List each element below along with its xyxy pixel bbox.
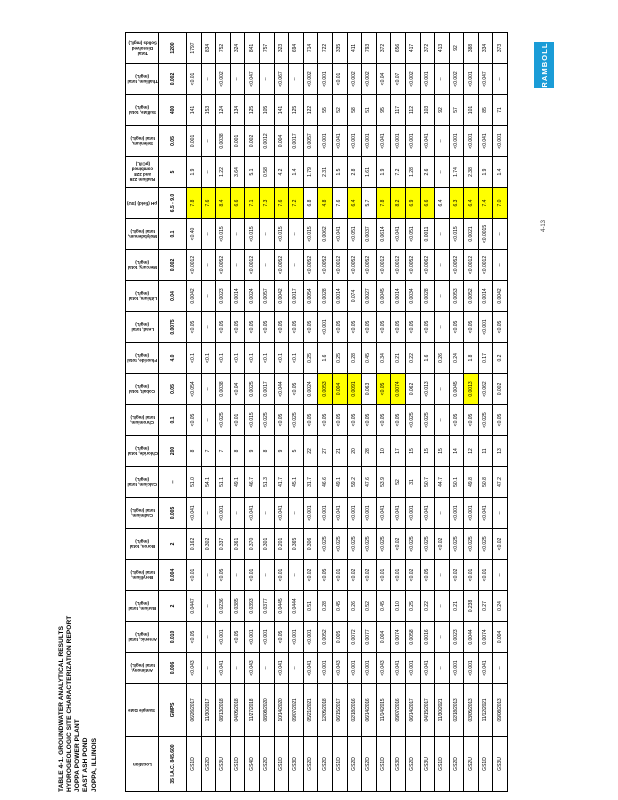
standard-value: 0.1 <box>159 405 187 436</box>
result-value: 0.0021 <box>464 219 479 250</box>
result-value: <0.02 <box>405 560 420 591</box>
result-value: <0.05 <box>274 312 289 343</box>
result-value: 0.062 <box>405 374 420 405</box>
result-value: <0.001 <box>478 312 493 343</box>
result-value: <0.047 <box>478 64 493 95</box>
result-value: <0.01 <box>274 560 289 591</box>
result-value: <0.05 <box>187 405 202 436</box>
result-value: 417 <box>405 33 420 64</box>
result-value: <0.05 <box>493 312 508 343</box>
analyte-name-label: Lead, total (mg/L) <box>127 322 158 332</box>
result-value: 694 <box>289 33 304 64</box>
result-value: -- <box>201 219 216 250</box>
result-value: -- <box>493 64 508 95</box>
sample-date: 11/12/2021 <box>478 684 493 737</box>
result-value: <0.05 <box>303 405 318 436</box>
result-value-exceedance: 0.0053 <box>318 374 333 405</box>
result-value: <0.05 <box>464 312 479 343</box>
standard-value: 0.05 <box>159 374 187 405</box>
result-value: <0.002 <box>347 64 362 95</box>
result-value: 0.0445 <box>274 591 289 622</box>
result-value: 1.79 <box>303 157 318 188</box>
standard-value: 1200 <box>159 33 187 64</box>
result-value: 0.17 <box>478 343 493 374</box>
col-header-analyte: Cadmium, total (mg/L) <box>126 498 159 529</box>
result-value-exceedance: 7.6 <box>274 188 289 219</box>
result-value: <0.001 <box>318 498 333 529</box>
result-value: <0.0012 <box>478 250 493 281</box>
sample-date: 08/08/2020 <box>259 684 274 737</box>
result-value: <0.001 <box>347 126 362 157</box>
result-value: 92 <box>435 95 450 126</box>
result-value: 1.6 <box>318 343 333 374</box>
result-value: <0.0012 <box>464 250 479 281</box>
analyte-name-label: Antimony, total (mg/L) <box>127 663 158 673</box>
result-value: 122 <box>303 95 318 126</box>
result-value: 1.28 <box>405 157 420 188</box>
result-value: 117 <box>391 95 406 126</box>
sample-row: GS1D11/12/2021<0.0410.00740.27<0.01<0.02… <box>478 33 493 792</box>
result-value-exceedance: 0.0013 <box>464 374 479 405</box>
sample-row: GS2D02/18/2013<0.0010.00230.21<0.02<0.02… <box>449 33 464 792</box>
sample-row: GS2D11/30/2017--------0.302--54.17----<0… <box>201 33 216 792</box>
result-value: 10 <box>376 436 391 467</box>
result-value: 0.0025 <box>245 374 260 405</box>
site-location: JOPPA, ILLINOIS <box>91 616 99 792</box>
col-header-analyte: Cobalt, total (mg/L) <box>126 374 159 405</box>
sample-row: GS2D06/14/2016<0.0010.00770.52<0.02<0.02… <box>362 33 377 792</box>
col-header-analyte: Chromium, total (mg/L) <box>126 405 159 436</box>
result-value: 0.21 <box>449 591 464 622</box>
result-value: 21 <box>332 436 347 467</box>
result-value: 8 <box>230 436 245 467</box>
well-location: GS1D <box>230 737 245 792</box>
sample-date: 04/05/2018 <box>230 684 245 737</box>
result-value: <0.02 <box>303 560 318 591</box>
result-value: -- <box>435 622 450 653</box>
result-value: <0.05 <box>318 560 333 591</box>
standard-value: 400 <box>159 95 187 126</box>
result-value: <0.002 <box>216 64 231 95</box>
result-value: <0.025 <box>289 405 304 436</box>
result-value: 28 <box>362 436 377 467</box>
result-value: 15 <box>420 436 435 467</box>
result-value: 7 <box>201 436 216 467</box>
result-value: 0.26 <box>347 591 362 622</box>
result-value: <0.05 <box>391 405 406 436</box>
result-value: 0.0072 <box>347 622 362 653</box>
result-value: <0.041 <box>332 498 347 529</box>
result-value: 0.004 <box>493 622 508 653</box>
result-value: 49.8 <box>464 467 479 498</box>
analyte-name-label: Molybdenum, total (mg/L) <box>127 229 158 239</box>
result-value: <0.0052 <box>449 250 464 281</box>
standard-value: -- <box>159 467 187 498</box>
result-value: 53.9 <box>376 467 391 498</box>
result-value: <0.043 <box>332 653 347 684</box>
result-value: <0.025 <box>332 529 347 560</box>
result-value: <0.001 <box>449 653 464 684</box>
col-header-sample-date-label: Sample Date <box>128 707 155 712</box>
standard-value: 0.004 <box>159 560 187 591</box>
result-value: -- <box>289 250 304 281</box>
result-value: 2.6 <box>420 157 435 188</box>
result-value: <0.0012 <box>391 250 406 281</box>
result-value: <0.002 <box>303 64 318 95</box>
sample-row: GS1D04/05/2018--<0.050.0385--0.361--49.1… <box>230 33 245 792</box>
result-value-exceedance: 4.8 <box>318 188 333 219</box>
result-value-exceedance: <0.05 <box>376 374 391 405</box>
result-value: -- <box>435 653 450 684</box>
result-value-exceedance: 6.4 <box>347 188 362 219</box>
result-value: <0.05 <box>347 312 362 343</box>
result-value: <0.05 <box>318 405 333 436</box>
result-value: -- <box>201 281 216 312</box>
result-value: 0.22 <box>405 343 420 374</box>
result-value: 51.1 <box>216 467 231 498</box>
well-location: GS1D <box>435 737 450 792</box>
ramboll-logo: RAMBOLL <box>534 42 554 88</box>
result-value: -- <box>259 64 274 95</box>
standards-row: 35 I.A.C. 845.600GWPS0.0060.01020.00420.… <box>159 33 187 792</box>
result-value: <0.0052 <box>347 250 362 281</box>
result-value: <0.041 <box>420 653 435 684</box>
result-value: <0.001 <box>318 126 333 157</box>
result-value: 0.0034 <box>405 281 420 312</box>
well-location: GS3D <box>289 737 304 792</box>
result-value: <0.015 <box>245 219 260 250</box>
result-value: <0.0052 <box>318 250 333 281</box>
standard-value: 5 <box>159 157 187 188</box>
result-value: 0.301 <box>259 529 274 560</box>
result-value: -- <box>289 64 304 95</box>
result-value: 112 <box>405 95 420 126</box>
result-value: 0.0024 <box>303 374 318 405</box>
result-value: -- <box>435 405 450 436</box>
sample-date: 02/18/2013 <box>449 684 464 737</box>
result-value: 0.52 <box>362 591 377 622</box>
result-value: <0.05 <box>289 312 304 343</box>
well-location: GS1D <box>376 737 391 792</box>
well-location: GS1D <box>332 737 347 792</box>
result-value-exceedance: 8.2 <box>391 188 406 219</box>
result-value: 656 <box>391 33 406 64</box>
result-value: <0.01 <box>187 560 202 591</box>
result-value: <0.05 <box>449 405 464 436</box>
result-value: <0.041 <box>216 653 231 684</box>
analyte-name-label: Selenium, total (mg/L) <box>127 136 158 146</box>
result-value: <0.05 <box>376 405 391 436</box>
result-value-exceedance: 7.6 <box>201 188 216 219</box>
result-value: <0.041 <box>478 498 493 529</box>
sample-date: 05/21/2021 <box>303 684 318 737</box>
result-value-exceedance: 7.8 <box>187 188 202 219</box>
result-value: 5 <box>289 436 304 467</box>
result-value: 153 <box>201 95 216 126</box>
sample-date: 06/14/2016 <box>362 684 377 737</box>
sample-date: 11/14/2015 <box>376 684 391 737</box>
result-value: -- <box>230 219 245 250</box>
col-header-analyte: Thallium, total (mg/L) <box>126 64 159 95</box>
result-value: <0.001 <box>259 622 274 653</box>
analyte-name-label: pH (field) (SU) <box>127 200 157 205</box>
result-value: -- <box>259 250 274 281</box>
result-value: <0.1 <box>230 343 245 374</box>
result-value: 54.1 <box>201 467 216 498</box>
col-header-location-label: Location <box>133 761 152 766</box>
result-value: 57 <box>449 95 464 126</box>
result-value: 47.6 <box>362 467 377 498</box>
result-value: <0.0062 <box>420 250 435 281</box>
sample-row: GS2D02/18/2016<0.0010.00720.26<0.02<0.02… <box>347 33 362 792</box>
result-value: 0.0014 <box>478 281 493 312</box>
col-header-analyte: Lead, total (mg/L) <box>126 312 159 343</box>
result-value: 0.0053 <box>449 281 464 312</box>
result-value: 3.64 <box>230 157 245 188</box>
result-value: 8 <box>259 436 274 467</box>
result-value: <0.1 <box>259 343 274 374</box>
result-value: -- <box>230 498 245 529</box>
result-value: <0.02 <box>362 560 377 591</box>
result-value: <0.05 <box>420 312 435 343</box>
standard-value: 0.010 <box>159 622 187 653</box>
result-value: 141 <box>274 95 289 126</box>
result-value: 0.0044 <box>464 622 479 653</box>
result-value: <0.05 <box>216 560 231 591</box>
result-value: 722 <box>318 33 333 64</box>
result-value: 6.4 <box>435 188 450 219</box>
result-value: 85 <box>478 95 493 126</box>
result-value: 0.002 <box>493 374 508 405</box>
result-value: <0.001 <box>464 498 479 529</box>
result-value: 0.25 <box>332 343 347 374</box>
result-value: <0.0015 <box>478 219 493 250</box>
result-value: 71 <box>493 95 508 126</box>
result-value: <0.05 <box>391 312 406 343</box>
result-value: 0.0393 <box>245 591 260 622</box>
result-value: <0.05 <box>464 405 479 436</box>
result-value: 0.0236 <box>216 591 231 622</box>
result-value: -- <box>201 312 216 343</box>
col-header-analyte: Molybdenum, total (mg/L) <box>126 219 159 250</box>
analyte-name-label: Cobalt, total (mg/L) <box>127 384 158 394</box>
result-value: 0.34 <box>376 343 391 374</box>
col-header-analyte: Lithium, total (mg/L) <box>126 281 159 312</box>
result-value: 0.365 <box>289 529 304 560</box>
result-value: 323 <box>274 33 289 64</box>
result-value: 752 <box>216 33 231 64</box>
standard-value: 0.04 <box>159 281 187 312</box>
result-value: 55 <box>318 95 333 126</box>
result-value: <0.025 <box>405 405 420 436</box>
result-value: 2.38 <box>464 157 479 188</box>
result-value: 50.8 <box>478 467 493 498</box>
result-value: 0.0027 <box>362 281 377 312</box>
result-value: 45.1 <box>289 467 304 498</box>
col-header-analyte: Sulfate, total (mg/L) <box>126 95 159 126</box>
result-value: <0.04 <box>376 64 391 95</box>
result-value: <0.05 <box>230 622 245 653</box>
analyte-name-label: Barium, total (mg/L) <box>127 601 158 611</box>
analyte-name-label: Thallium, total (mg/L) <box>127 74 158 84</box>
sample-row: GS2D05/21/2021<0.041<0.0010.51<0.020.306… <box>303 33 318 792</box>
result-value: 49.1 <box>230 467 245 498</box>
result-value: 373 <box>493 33 508 64</box>
sample-date: 12/05/2018 <box>318 684 333 737</box>
result-value: -- <box>289 219 304 250</box>
result-value: 0.0058 <box>405 622 420 653</box>
sample-row: GS3D09/07/2021--<0.0010.0444--0.365--45.… <box>289 33 304 792</box>
result-value: 0.002 <box>245 126 260 157</box>
result-value: <0.015 <box>216 219 231 250</box>
result-value-exceedance: 0.004 <box>332 374 347 405</box>
result-value: <0.041 <box>478 653 493 684</box>
result-value: 47.2 <box>493 467 508 498</box>
result-value: 51.0 <box>187 467 202 498</box>
result-value: 0.24 <box>449 343 464 374</box>
result-value: <0.01 <box>332 560 347 591</box>
result-value: -- <box>493 250 508 281</box>
analyte-name-label: Total Dissolved Solids (mg/L) <box>127 40 158 56</box>
result-value: <0.001 <box>303 622 318 653</box>
well-location: GS2D <box>449 737 464 792</box>
result-value: 2.31 <box>318 157 333 188</box>
result-value: 0.51 <box>303 591 318 622</box>
result-value: 0.0077 <box>362 622 377 653</box>
sample-row: GS1D06/26/2017<0.043<0.050.0447<0.010.16… <box>187 33 202 792</box>
result-value-exceedance: 0.0091 <box>347 374 362 405</box>
sample-date: 06/14/2017 <box>405 684 420 737</box>
result-value: <0.001 <box>464 64 479 95</box>
result-value: <0.04 <box>230 374 245 405</box>
result-value: <0.05 <box>187 622 202 653</box>
result-value: <0.05 <box>405 312 420 343</box>
result-value: 0.22 <box>420 591 435 622</box>
sample-date: 04/15/2017 <box>420 684 435 737</box>
standard-value: 2 <box>159 529 187 560</box>
result-value: <0.041 <box>274 653 289 684</box>
result-value: <0.02 <box>391 529 406 560</box>
result-value-exceedance: 6.9 <box>405 188 420 219</box>
result-value: -- <box>289 560 304 591</box>
standard-value: 200 <box>159 436 187 467</box>
result-value: 841 <box>245 33 260 64</box>
result-value: <0.025 <box>318 529 333 560</box>
result-value: 0.0014 <box>230 281 245 312</box>
result-value: <0.001 <box>405 126 420 157</box>
well-location: GS2D <box>259 737 274 792</box>
result-value: 0.0042 <box>187 281 202 312</box>
result-value: 7.2 <box>391 157 406 188</box>
result-value: <0.001 <box>362 653 377 684</box>
result-value: 0.0377 <box>259 591 274 622</box>
result-value: -- <box>259 653 274 684</box>
col-header-analyte: Antimony, total (mg/L) <box>126 653 159 684</box>
result-value: <0.05 <box>216 312 231 343</box>
result-value: <0.051 <box>347 219 362 250</box>
result-value: 46.6 <box>318 467 333 498</box>
result-value: -- <box>259 498 274 529</box>
sample-row: GS4D11/27/2018<0.043<0.0010.0393<0.010.3… <box>245 33 260 792</box>
result-value: 0.27 <box>478 591 493 622</box>
analyte-name-label: Radium 226 and 228 combined (pCi/L) <box>127 162 158 183</box>
result-value: <0.05 <box>332 405 347 436</box>
result-value: -- <box>201 405 216 436</box>
col-header-analyte: Total Dissolved Solids (mg/L) <box>126 33 159 64</box>
result-value-exceedance: 7.4 <box>478 188 493 219</box>
result-value: <0.0052 <box>303 250 318 281</box>
result-value: 0.10 <box>391 591 406 622</box>
result-value: 0.0045 <box>449 374 464 405</box>
well-location: GS2D <box>405 737 420 792</box>
col-header-analyte: Chloride, total (mg/L) <box>126 436 159 467</box>
result-value: 0.0038 <box>216 374 231 405</box>
result-value: 9 <box>274 436 289 467</box>
analyte-name-label: Boron, total (mg/L) <box>127 539 158 549</box>
result-value: <0.015 <box>245 405 260 436</box>
result-value: -- <box>201 622 216 653</box>
result-value: 49.1 <box>332 467 347 498</box>
result-value: <0.041 <box>274 498 289 529</box>
result-value: -- <box>201 498 216 529</box>
result-value: <0.05 <box>362 312 377 343</box>
result-value: 0.074 <box>347 281 362 312</box>
result-value-exceedance: 6.6 <box>420 188 435 219</box>
result-value: <0.051 <box>405 219 420 250</box>
result-value: <0.01 <box>478 560 493 591</box>
result-value: 372 <box>420 33 435 64</box>
result-value: -- <box>201 374 216 405</box>
result-value: <0.05 <box>274 405 289 436</box>
result-value: <0.001 <box>449 498 464 529</box>
standard-type: GWPS <box>159 684 187 737</box>
result-value: <0.05 <box>303 312 318 343</box>
result-value: <0.041 <box>391 498 406 529</box>
well-location: GS3U <box>493 737 508 792</box>
result-value: 0.0385 <box>230 591 245 622</box>
result-value: 0.25 <box>303 343 318 374</box>
col-header-analyte: Mercury, total (mg/L) <box>126 250 159 281</box>
result-value: 0.238 <box>464 591 479 622</box>
result-value: 0.21 <box>391 343 406 374</box>
result-value: <0.043 <box>245 653 260 684</box>
sample-date: 02/18/2016 <box>347 684 362 737</box>
result-value: -- <box>230 560 245 591</box>
result-value: 1.4 <box>493 157 508 188</box>
result-value-exceedance: 6.3 <box>449 188 464 219</box>
well-location: GS1D <box>187 737 202 792</box>
result-value: 4.2 <box>274 157 289 188</box>
result-value: 105 <box>259 95 274 126</box>
unit-name: EAST ASH POND <box>82 616 90 792</box>
result-value: 0.0057 <box>303 126 318 157</box>
result-value: 0.306 <box>303 529 318 560</box>
result-value: 0.004 <box>274 126 289 157</box>
sample-date: 09/07/2021 <box>289 684 304 737</box>
result-value-exceedance: 7.8 <box>376 188 391 219</box>
result-value: 0.0024 <box>245 281 260 312</box>
analyte-name-label: Sulfate, total (mg/L) <box>127 105 158 115</box>
result-value: -- <box>289 498 304 529</box>
result-value: 388 <box>464 33 479 64</box>
result-value: 0.0023 <box>216 281 231 312</box>
result-value: 0.0023 <box>449 622 464 653</box>
result-value: <0.0052 <box>405 250 420 281</box>
result-value-exceedance: 8.4 <box>216 188 231 219</box>
result-value: 7.6 <box>332 188 347 219</box>
result-value: <0.05 <box>332 312 347 343</box>
result-value: 0.0052 <box>318 622 333 653</box>
